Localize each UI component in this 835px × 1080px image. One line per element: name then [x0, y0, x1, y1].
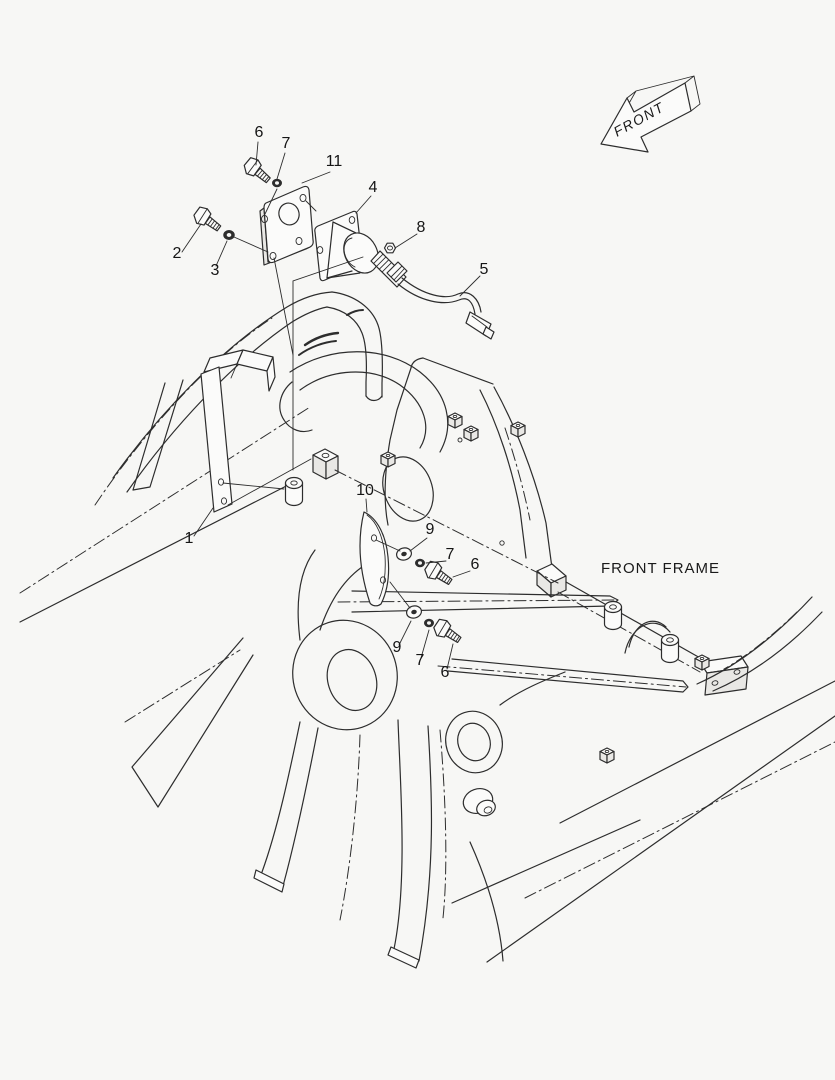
- callout-part-8-6: 8: [417, 219, 426, 236]
- callout-part-10-9: 10: [356, 482, 374, 499]
- exploded-parts-diagram: FRONT FRONT FRAME 671123485110976976: [0, 0, 835, 1080]
- callout-part-1-8: 1: [185, 530, 194, 547]
- callout-part-3-4: 3: [211, 262, 220, 279]
- fastener-washer-9b: [405, 604, 423, 619]
- part-11-mounting-plate: [260, 186, 313, 265]
- front-frame-label: FRONT FRAME: [601, 560, 720, 577]
- front-direction-arrow: FRONT: [601, 76, 700, 152]
- callout-part-9-13: 9: [393, 639, 402, 656]
- fastener-washer-7a: [415, 559, 425, 568]
- callout-part-5-7: 5: [480, 261, 489, 278]
- callout-part-7-11: 7: [446, 546, 455, 563]
- callout-part-7-1: 7: [282, 135, 291, 152]
- part-5-cable: [371, 251, 494, 339]
- part-1-bracket: [201, 350, 275, 512]
- front-frame-structure: [20, 292, 835, 968]
- bottom-right-rails: [452, 681, 835, 962]
- callout-part-6-12: 6: [471, 556, 480, 573]
- callout-part-7-14: 7: [416, 652, 425, 669]
- left-frame-rails: [20, 380, 310, 807]
- cross-bars: [338, 591, 688, 692]
- fastener-washer-9a: [395, 546, 413, 561]
- callout-part-6-0: 6: [255, 124, 264, 141]
- callout-part-6-15: 6: [441, 664, 450, 681]
- bushing: [460, 785, 498, 819]
- callout-part-2-3: 2: [173, 245, 182, 262]
- fastener-bolt-6a: [422, 559, 455, 590]
- standoff-cylinder: [286, 478, 303, 506]
- callout-part-11-2: 11: [326, 153, 343, 170]
- fastener-bolt-6-top: [241, 155, 274, 187]
- main-panel: [374, 358, 504, 545]
- exploded-parts: [191, 155, 494, 647]
- callout-part-4-5: 4: [369, 179, 378, 196]
- pivot-drum: [280, 310, 448, 452]
- fastener-washer-7-top: [272, 179, 282, 188]
- callout-part-9-10: 9: [426, 521, 435, 538]
- mounting-pad: [313, 449, 338, 479]
- right-gusset: [480, 387, 566, 597]
- fastener-washer-3: [223, 230, 235, 240]
- fastener-washer-7b: [424, 619, 434, 628]
- part-8-nut: [385, 243, 396, 253]
- fastener-bolt-6b: [431, 617, 464, 648]
